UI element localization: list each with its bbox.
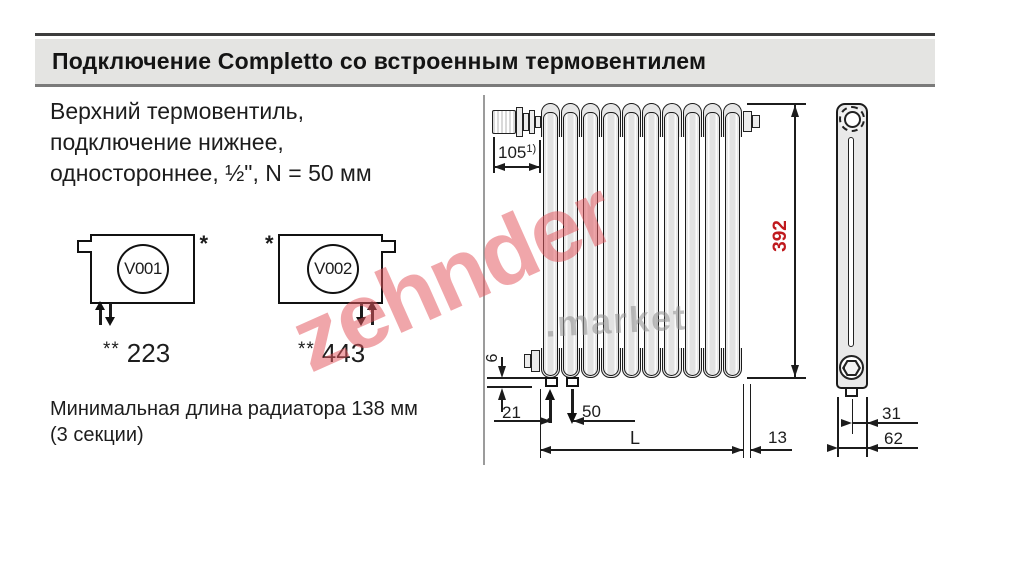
flow-arrow-down <box>571 389 574 413</box>
blind-plug <box>752 115 760 128</box>
dim-length-label: L <box>630 428 640 449</box>
catalog-page: Подключение Completto со встроенным терм… <box>0 0 1018 576</box>
asterisk-mark: * <box>265 231 274 257</box>
section-header: Подключение Completto со встроенным терм… <box>35 39 935 87</box>
arrowhead <box>827 444 838 452</box>
arrowhead <box>791 105 799 117</box>
bottom-bracket-tab <box>845 389 858 397</box>
arrowhead <box>498 388 506 400</box>
dim-tapping-spacing-label: 50 <box>582 402 601 422</box>
dim-height-label: 392 <box>770 213 790 259</box>
return-plug <box>531 350 540 372</box>
radiator-section <box>540 103 560 378</box>
column-divider <box>483 95 485 465</box>
dim-line <box>540 449 743 451</box>
blind-plug <box>743 111 752 132</box>
ext-line <box>487 377 545 379</box>
scheme-caption: **223 <box>103 338 170 369</box>
dim-bottom-gap-label: 6 <box>484 349 500 367</box>
radiator-section <box>682 103 702 378</box>
arrowhead <box>540 446 551 454</box>
dim-line <box>867 447 918 449</box>
asterisk-mark: * <box>199 231 208 257</box>
return-plug <box>524 354 531 368</box>
ext-line <box>747 377 806 379</box>
arrowhead <box>494 163 505 171</box>
radiator-section <box>621 103 641 378</box>
flow-arrow-up-head <box>367 301 377 310</box>
radiator-section <box>662 103 682 378</box>
bottom-tapping <box>566 377 579 387</box>
flow-arrow-up-head <box>95 301 105 310</box>
footnote-stars: ** <box>103 339 120 360</box>
description-line: Верхний термовентиль, <box>50 96 372 127</box>
arrowhead <box>841 419 852 427</box>
note-line: Минимальная длина радиатора 138 мм <box>50 396 418 422</box>
description-line: подключение нижнее, <box>50 127 372 158</box>
dim-line <box>794 105 796 377</box>
top-plug-icon <box>844 111 861 128</box>
dim-line <box>867 422 918 424</box>
description-line: одностороннее, ½", N = 50 мм <box>50 158 372 189</box>
arrowhead <box>573 417 584 425</box>
radiator-front-view <box>540 103 743 378</box>
radiator-section <box>560 103 580 378</box>
dim-footnote: 1) <box>526 143 536 155</box>
dim-end-extension-label: 13 <box>768 428 787 448</box>
radiator-section <box>581 103 601 378</box>
arrowhead <box>529 163 540 171</box>
page-title: Подключение Completto со встроенным терм… <box>35 39 935 84</box>
dim-line <box>750 449 792 451</box>
scheme-caption: **443 <box>298 338 365 369</box>
pipe-stub-icon <box>381 240 396 253</box>
radiator-section <box>723 103 743 378</box>
ext-line <box>487 386 532 388</box>
radiator-section <box>601 103 621 378</box>
pipe-stub-icon <box>77 240 92 253</box>
ext-line <box>852 399 854 434</box>
flow-arrow-up <box>99 309 102 325</box>
dim-line <box>838 447 867 449</box>
minimum-length-note: Минимальная длина радиатора 138 мм (3 се… <box>50 396 418 448</box>
header-top-rule <box>35 33 935 36</box>
valve-scheme-v001: V001 * <box>90 234 195 304</box>
footnote-stars: ** <box>298 339 315 360</box>
valve-collar <box>516 107 523 137</box>
dim-bracket-depth-label: 31 <box>882 404 901 424</box>
thermostat-knob-icon <box>492 110 516 134</box>
flow-arrow-up <box>371 309 374 325</box>
dim-point <box>547 418 552 423</box>
side-groove <box>848 137 854 347</box>
flow-arrow-down-head <box>105 317 115 326</box>
dim-total-depth-label: 62 <box>884 429 903 449</box>
radiator-section <box>641 103 661 378</box>
arrowhead <box>498 366 506 378</box>
arrowhead <box>791 365 799 377</box>
dim-line <box>852 422 867 424</box>
dim-valve-offset-label: 1051) <box>498 143 536 163</box>
radiator-section <box>702 103 722 378</box>
valve-scheme-v002: V002 * <box>278 234 383 304</box>
arrowhead <box>732 446 743 454</box>
valve-code-badge: V002 <box>307 244 359 294</box>
bottom-tapping <box>545 377 558 387</box>
scheme-code-number: 223 <box>127 338 170 368</box>
dim-value: 105 <box>498 143 526 162</box>
connection-description: Верхний термовентиль, подключение нижнее… <box>50 96 372 189</box>
scheme-code-number: 443 <box>322 338 365 368</box>
note-line: (3 секции) <box>50 422 418 448</box>
valve-code-badge: V001 <box>117 244 169 294</box>
flow-arrow-down-head <box>356 317 366 326</box>
